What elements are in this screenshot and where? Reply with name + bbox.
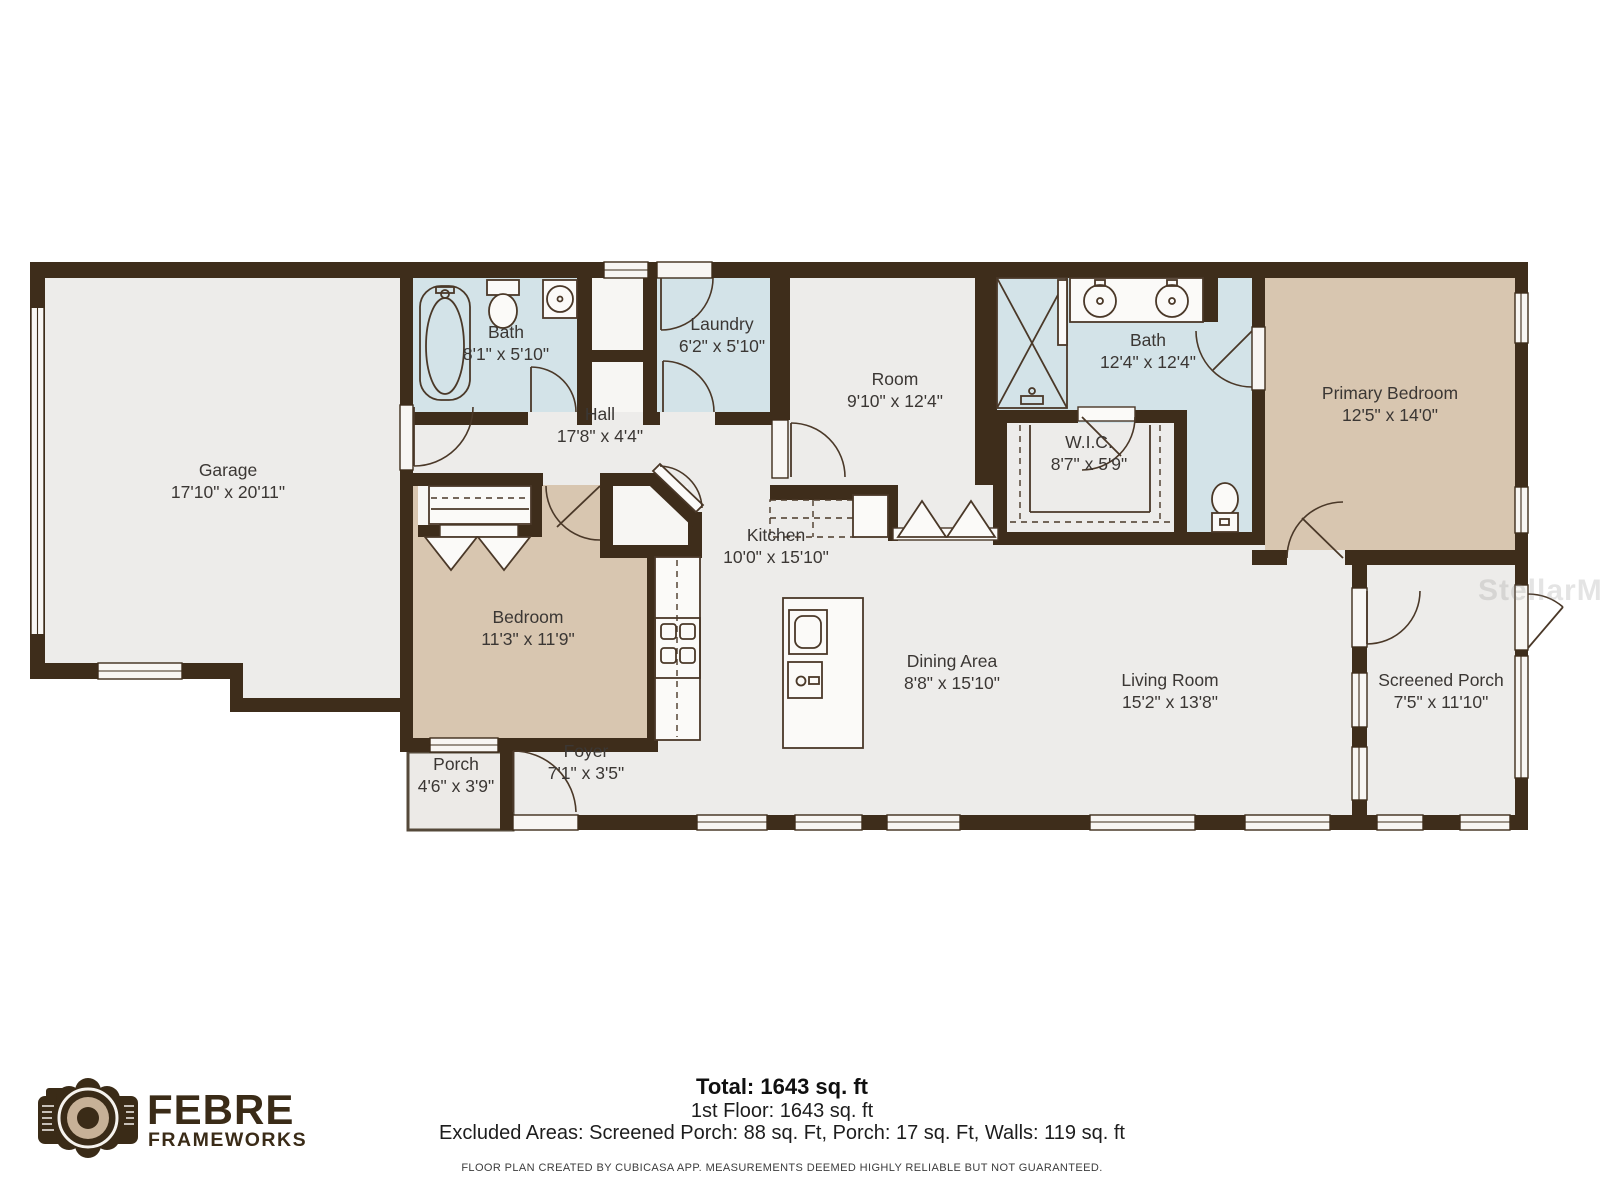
- primary-bedroom-name: Primary Bedroom: [1322, 383, 1458, 403]
- porch-left-door-opening: [1352, 588, 1367, 647]
- kitchen-island: [783, 598, 863, 748]
- garage-name: Garage: [199, 460, 257, 480]
- window-top-closet: [604, 262, 648, 278]
- kitchen-name: Kitchen: [747, 525, 805, 545]
- window-front-3: [887, 815, 960, 830]
- bath1-dims: 8'1" x 5'10": [463, 344, 549, 364]
- logo-text-main: FEBRE: [147, 1086, 294, 1133]
- window-primary-1: [1515, 293, 1528, 343]
- window-bedroom-porch: [430, 738, 498, 752]
- screened-porch-name: Screened Porch: [1378, 670, 1504, 690]
- double-vanity: [1070, 278, 1203, 322]
- window-front-5: [1245, 815, 1330, 830]
- sink-bath1: [543, 280, 577, 318]
- garage-dims: 17'10" x 20'11": [171, 482, 285, 502]
- laundry-name: Laundry: [690, 314, 753, 334]
- window-primary-2: [1515, 487, 1528, 533]
- foyer-dims: 7'1" x 3'5": [548, 763, 625, 783]
- febre-frameworks-logo: FEBRE FRAMEWORKS: [38, 1078, 307, 1158]
- wic-door-sill: [1078, 407, 1135, 421]
- laundry-dims: 6'2" x 5'10": [679, 336, 765, 356]
- wic-dims: 8'7" x 5'9": [1051, 454, 1128, 474]
- room-dims: 9'10" x 12'4": [847, 391, 943, 411]
- bath2-dims: 12'4" x 12'4": [1100, 352, 1196, 372]
- bath2-door-opening: [1252, 327, 1265, 390]
- total-area-text: Total: 1643 sq. ft: [696, 1074, 869, 1099]
- toilet-bath1: [487, 280, 519, 328]
- room-name: Room: [872, 369, 919, 389]
- garage-door: [31, 300, 44, 642]
- porch-name: Porch: [433, 754, 479, 774]
- window-front-2: [795, 815, 862, 830]
- bedroom-name: Bedroom: [492, 607, 563, 627]
- window-front-1: [697, 815, 767, 830]
- garage-hall-door-opening: [400, 405, 413, 470]
- wic-name: W.I.C.: [1065, 432, 1113, 452]
- front-door-opening: [513, 815, 578, 830]
- living-name: Living Room: [1121, 670, 1218, 690]
- toilet-bath2: [1212, 483, 1238, 532]
- footer-summary: Total: 1643 sq. ft 1st Floor: 1643 sq. f…: [439, 1074, 1125, 1174]
- porch-dims: 4'6" x 3'9": [418, 776, 495, 796]
- window-garage-bottom: [98, 663, 182, 679]
- kitchen-dims: 10'0" x 15'10": [723, 547, 829, 567]
- floor-plan-canvas: Garage 17'10" x 20'11" Bath 8'1" x 5'10"…: [0, 0, 1600, 1200]
- logo-text-sub: FRAMEWORKS: [148, 1129, 307, 1151]
- kitchen-counter-run: [655, 557, 700, 740]
- window-porch-left-1: [1352, 673, 1367, 727]
- camera-icon: [38, 1078, 138, 1158]
- window-porch-bottom-1: [1377, 815, 1423, 830]
- bath2-name: Bath: [1130, 330, 1166, 350]
- window-porch-left-2: [1352, 747, 1367, 800]
- excluded-areas-text: Excluded Areas: Screened Porch: 88 sq. F…: [439, 1122, 1125, 1144]
- stellar-mls-watermark: StellarMLS: [1478, 574, 1600, 607]
- primary-bedroom-dims: 12'5" x 14'0": [1342, 405, 1438, 425]
- window-porch-right-screen: [1515, 656, 1528, 778]
- hall-dims: 17'8" x 4'4": [557, 426, 643, 446]
- refrigerator: [853, 495, 888, 537]
- bath1-name: Bath: [488, 322, 524, 342]
- disclaimer-text: FLOOR PLAN CREATED BY CUBICASA APP. MEAS…: [461, 1162, 1102, 1174]
- bedroom-dims: 11'3" x 11'9": [481, 629, 574, 649]
- living-dims: 15'2" x 13'8": [1122, 692, 1218, 712]
- dining-dims: 8'8" x 15'10": [904, 673, 1000, 693]
- window-porch-bottom-2: [1460, 815, 1510, 830]
- shower-glass-door: [1058, 280, 1067, 345]
- laundry-exterior-door-opening: [657, 262, 712, 278]
- utility-closet-top: [590, 278, 643, 350]
- room-door-opening: [772, 420, 788, 478]
- floor-plan-page: Garage 17'10" x 20'11" Bath 8'1" x 5'10"…: [0, 0, 1600, 1200]
- hall-name: Hall: [585, 404, 615, 424]
- dining-name: Dining Area: [907, 651, 998, 671]
- first-floor-area-text: 1st Floor: 1643 sq. ft: [691, 1100, 874, 1122]
- window-front-4: [1090, 815, 1195, 830]
- screened-porch-dims: 7'5" x 11'10": [1394, 692, 1489, 712]
- foyer-name: Foyer: [564, 741, 609, 761]
